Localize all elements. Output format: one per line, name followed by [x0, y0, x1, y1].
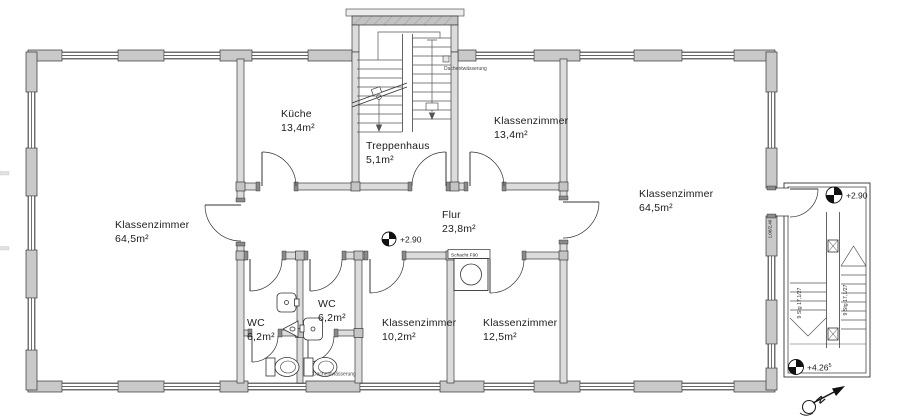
room-name-flur: Flur	[442, 209, 461, 221]
wall-pier	[306, 381, 360, 392]
room-area-flur: 23,8m²	[442, 223, 476, 235]
level-marker-corridor: +2.90	[382, 232, 422, 246]
wall-pier	[26, 52, 37, 92]
wall-pier	[766, 300, 777, 344]
room-name-wc-left: WC	[247, 317, 265, 329]
room-area-klassenzimmer-left: 64,5m²	[115, 233, 149, 245]
wall-pier	[118, 50, 164, 61]
wall-pier	[766, 148, 777, 188]
room-name-klassenzimmer-left: Klassenzimmer	[115, 219, 190, 231]
wall-pier	[766, 52, 777, 92]
door-wc-right	[310, 259, 342, 291]
floor-plan: 9 Stg 17,1/27 9 Stg 17,1/27	[0, 0, 900, 417]
roof-drain-label-bottom: Dachentwässerung	[313, 372, 356, 378]
room-area-treppenhaus: 5,1m²	[366, 154, 394, 166]
level-value: +4.265	[807, 363, 832, 373]
room-area-klassenzimmer-right: 64,5m²	[639, 202, 673, 214]
room-area-wc-left: 6,2m²	[247, 331, 275, 343]
level-marker-annex-bottom: +4.265	[789, 360, 832, 375]
door-wc-left	[250, 259, 282, 291]
annex-staircase: 9 Stg 17,1/27 9 Stg 17,1/27	[775, 183, 870, 377]
roof-drain-label: Dachentwässerung	[444, 66, 487, 72]
room-area-kueche: 13,4m²	[281, 122, 315, 134]
room-labels: Klassenzimmer 64,5m² Küche 13,4m² Treppe…	[115, 108, 714, 343]
room-name-kueche: Küche	[281, 108, 312, 120]
room-area-klassenzimmer-small-left: 10,2m²	[382, 331, 416, 343]
shaft: Schacht F90	[448, 250, 490, 291]
stair-flight-label: 9 Stg 17,1/27	[797, 287, 803, 318]
room-area-klassenzimmer-top: 13,4m²	[494, 129, 528, 141]
level-marker-icon	[382, 232, 396, 246]
room-name-klassenzimmer-small-right: Klassenzimmer	[483, 317, 558, 329]
room-name-klassenzimmer-right: Klassenzimmer	[639, 188, 714, 200]
room-name-wc-right: WC	[318, 298, 336, 310]
door-klassenzimmer-small-right	[490, 259, 524, 293]
wall-pier	[458, 50, 476, 61]
scan-artifacts	[0, 172, 9, 251]
door-klassenzimmer-left	[205, 205, 241, 241]
door-treppenhaus	[412, 152, 446, 186]
wall-pier	[26, 148, 37, 196]
wall-pier	[534, 50, 580, 61]
wall-pier	[766, 368, 777, 390]
door-kueche	[262, 152, 296, 186]
stair-arrow-head	[376, 125, 382, 133]
wall-pier	[220, 50, 252, 61]
door-klassenzimmer-small-left	[370, 259, 404, 293]
room-name-klassenzimmer-small-left: Klassenzimmer	[382, 317, 457, 329]
wall-pier	[26, 250, 37, 298]
wall-pier	[534, 381, 580, 392]
wall-pier	[440, 381, 484, 392]
wall-pier	[26, 350, 37, 390]
room-name-klassenzimmer-top: Klassenzimmer	[494, 115, 569, 127]
stair-flight-label: 9 Stg 17,1/27	[843, 284, 849, 315]
level-value: +2.90	[846, 191, 868, 201]
door-posts	[236, 182, 776, 337]
floor-plan-svg: 9 Stg 17,1/27 9 Stg 17,1/27	[0, 0, 900, 417]
main-staircase	[352, 32, 451, 132]
north-arrow-icon: N	[800, 386, 845, 415]
door-dimension-label: 1,06/2,46	[768, 219, 773, 238]
stair-treads-left	[357, 60, 402, 132]
door-klassenzimmer-right	[563, 202, 599, 238]
wall-pier	[308, 50, 352, 61]
sink	[277, 293, 299, 312]
shaft-label: Schacht F90	[451, 253, 478, 259]
wall-pier	[634, 381, 682, 392]
room-name-treppenhaus: Treppenhaus	[366, 140, 430, 152]
level-marker-icon	[826, 187, 842, 203]
level-marker-icon	[789, 360, 804, 375]
room-area-wc-right: 6,2m²	[318, 312, 346, 324]
toilet	[266, 358, 299, 377]
stair-stringer	[403, 34, 413, 132]
level-value: +2.90	[400, 235, 422, 245]
wall-pier	[634, 50, 682, 61]
stair-tower	[346, 9, 464, 52]
door-klassenzimmer-top	[470, 152, 504, 186]
wall-pier	[118, 381, 164, 392]
room-area-klassenzimmer-small-right: 12,5m²	[483, 331, 517, 343]
